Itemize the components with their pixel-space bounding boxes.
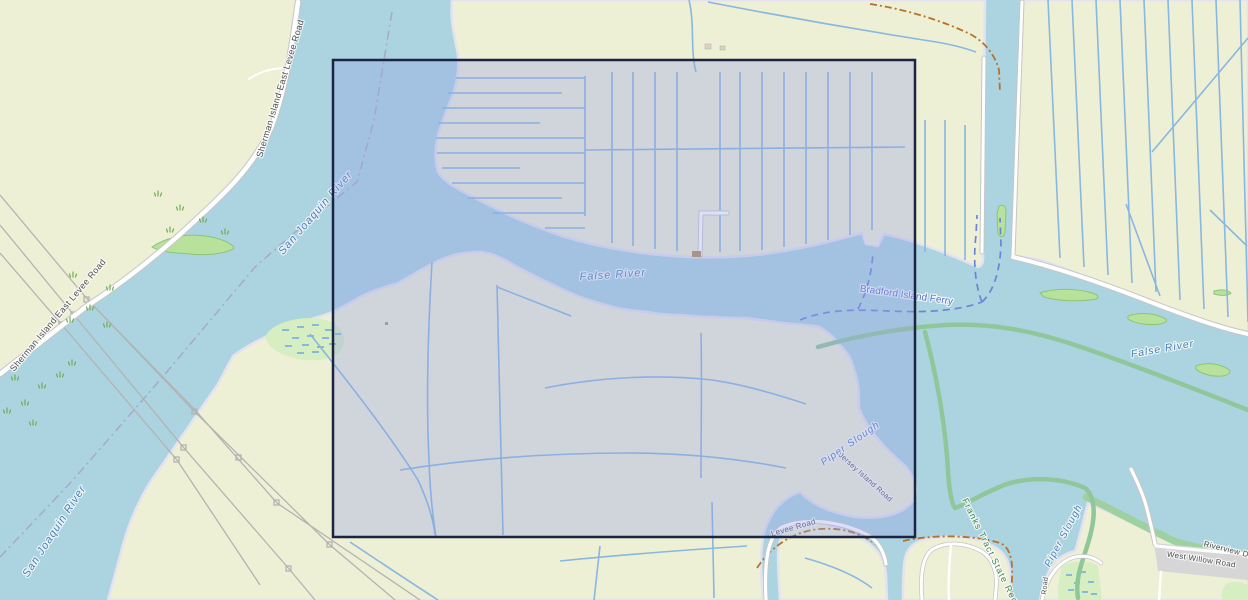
corner-veg [1222,582,1248,600]
road-webb-east [982,58,984,252]
map-canvas[interactable]: San Joaquin River San Joaquin River Fals… [0,0,1248,600]
selection-rectangle[interactable] [333,60,915,537]
building [705,44,711,49]
map-viewport[interactable]: San Joaquin River San Joaquin River Fals… [0,0,1248,600]
building [720,46,725,50]
